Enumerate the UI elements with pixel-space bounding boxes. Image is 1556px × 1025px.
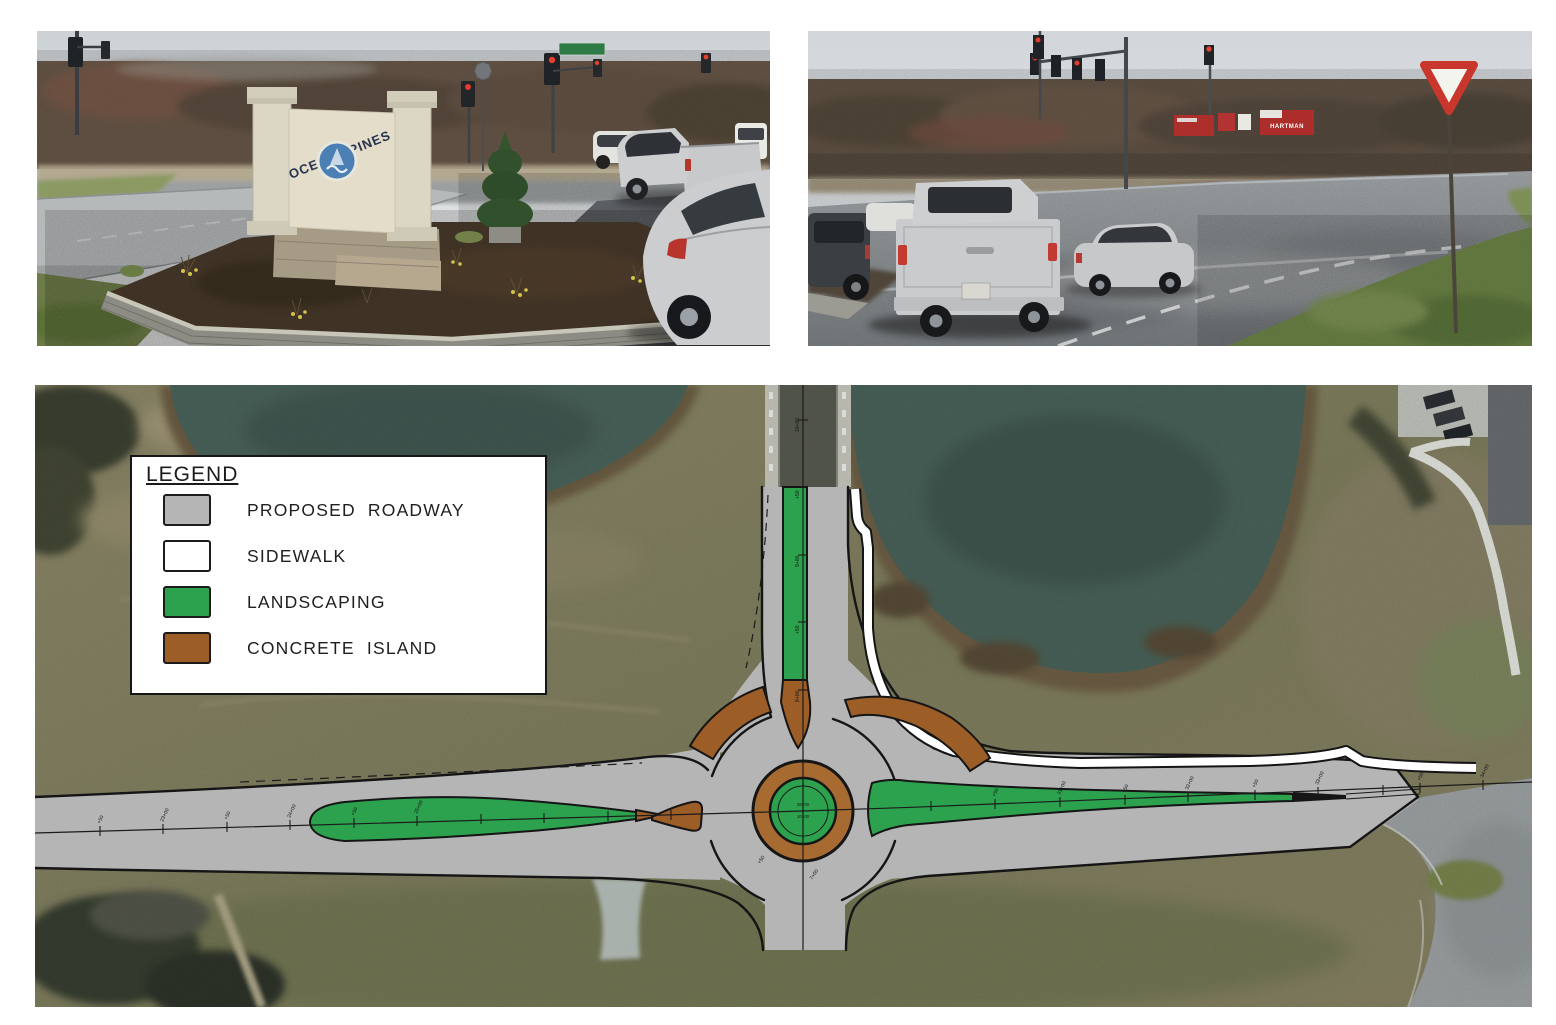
license-plate	[962, 283, 990, 299]
street-name-sign	[559, 43, 605, 55]
red-signal-light-icon	[1206, 46, 1211, 51]
legend-label: CONCRETE ISLAND	[247, 631, 437, 665]
legend-title: LEGEND	[146, 463, 238, 487]
entrance-monument-sign: OCEAN PINES	[247, 87, 441, 291]
legend-label: SIDEWALK	[247, 539, 346, 573]
vehicle-dark-suv	[808, 213, 870, 300]
swatch-sidewalk	[164, 541, 210, 571]
swatch-landscaping	[164, 587, 210, 617]
photo-existing-entrance-median: OCEAN PINES	[37, 31, 770, 346]
legend: LEGEND PROPOSED ROADWAY SIDEWALK LANDSCA…	[130, 455, 547, 695]
signal-head-back-icon	[68, 37, 83, 67]
taillight	[1048, 243, 1057, 261]
signal-head-icon	[1095, 59, 1105, 81]
red-signal-light-icon	[465, 84, 471, 90]
svg-text:9+00: 9+00	[795, 556, 801, 567]
treeline	[808, 79, 1532, 179]
photo-existing-intersection-approach: HARTMAN	[808, 31, 1532, 346]
svg-text:10+00: 10+00	[795, 418, 801, 432]
taillight	[898, 245, 907, 265]
svg-text:28+00: 28+00	[797, 802, 810, 807]
svg-text:10+00: 10+00	[797, 814, 810, 819]
sign-back-octagon-icon	[475, 62, 492, 80]
svg-text:+50: +50	[795, 625, 801, 634]
swatch-proposed-roadway	[164, 495, 210, 525]
exhibit-page: OCEAN PINES	[0, 0, 1556, 1025]
legend-label: PROPOSED ROADWAY	[247, 493, 465, 527]
red-signal-light-icon	[549, 57, 555, 63]
roundabout-concept-plan: +50 23+00 +50 24+00 +50 25+00 +50 31+00 …	[35, 385, 1532, 1007]
swatch-concrete-island	[164, 633, 210, 663]
legend-label: LANDSCAPING	[247, 585, 386, 619]
campaign-sign-text: HARTMAN	[1270, 124, 1304, 130]
red-signal-light-icon	[1075, 61, 1080, 66]
svg-text:+50: +50	[795, 490, 801, 499]
svg-text:8+00: 8+00	[795, 691, 801, 702]
signal-head-icon	[1051, 55, 1061, 77]
